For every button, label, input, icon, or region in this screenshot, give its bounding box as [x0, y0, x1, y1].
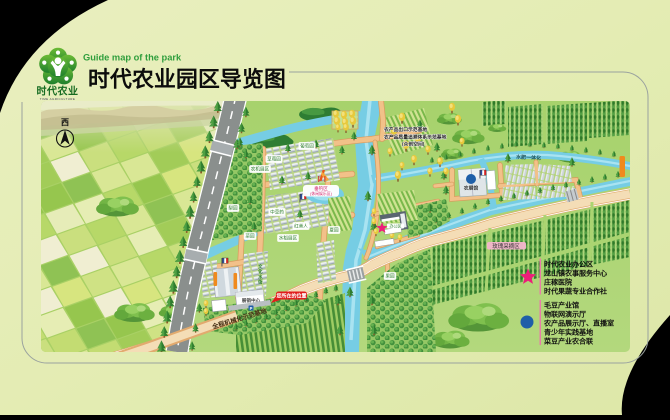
- svg-text:水肥一体化: 水肥一体化: [515, 153, 541, 161]
- svg-text:时代农业: 时代农业: [37, 85, 79, 98]
- svg-text:龙山镇农事服务中心: 龙山镇农事服务中心: [543, 269, 608, 278]
- svg-text:菜园: 菜园: [245, 233, 255, 240]
- svg-text:农机展区: 农机展区: [251, 166, 270, 173]
- svg-text:草莓园: 草莓园: [267, 156, 281, 163]
- svg-text:葡萄园: 葡萄园: [300, 143, 314, 150]
- svg-text:农展馆: 农展馆: [463, 185, 479, 192]
- svg-text:菜豆产业农合联: 菜豆产业农合联: [543, 337, 594, 346]
- svg-text:(休闲娱乐区): (休闲娱乐区): [310, 191, 333, 196]
- svg-text:梨园: 梨园: [228, 205, 238, 212]
- svg-text:玫瑰采摘区: 玫瑰采摘区: [492, 242, 520, 250]
- svg-text:西: 西: [61, 118, 69, 127]
- svg-text:农产品出口示范基地: 农产品出口示范基地: [383, 126, 427, 133]
- svg-text:时代农业园区导览图: 时代农业园区导览图: [88, 67, 286, 92]
- svg-text:中草药: 中草药: [270, 209, 284, 216]
- svg-text:TIME AGRICULTURE: TIME AGRICULTURE: [40, 97, 76, 101]
- svg-text:Guide map of the park: Guide map of the park: [83, 53, 182, 63]
- svg-text:您所在的位置: 您所在的位置: [276, 293, 306, 300]
- svg-text:庄稼医院: 庄稼医院: [544, 278, 573, 287]
- svg-text:P: P: [250, 306, 253, 311]
- svg-text:农产品展示厅、直播室: 农产品展示厅、直播室: [543, 319, 614, 328]
- svg-text:办公区: 办公区: [390, 223, 402, 229]
- svg-text:时代果蔬专业合作社: 时代果蔬专业合作社: [544, 287, 607, 296]
- svg-text:物联网演示厅: 物联网演示厅: [544, 310, 586, 319]
- svg-text:青少年实践基地: 青少年实践基地: [544, 328, 593, 337]
- svg-text:农产品质量追溯体系示范基地: 农产品质量追溯体系示范基地: [383, 134, 447, 141]
- svg-text:红美人: 红美人: [294, 223, 308, 230]
- svg-text:水稻展区: 水稻展区: [279, 235, 298, 242]
- svg-text:毛豆产业馆: 毛豆产业馆: [544, 301, 579, 310]
- svg-text:时代农业办公区: 时代农业办公区: [544, 260, 593, 269]
- svg-text:(众创空间): (众创空间): [402, 141, 425, 148]
- svg-text:街: 街: [257, 279, 263, 286]
